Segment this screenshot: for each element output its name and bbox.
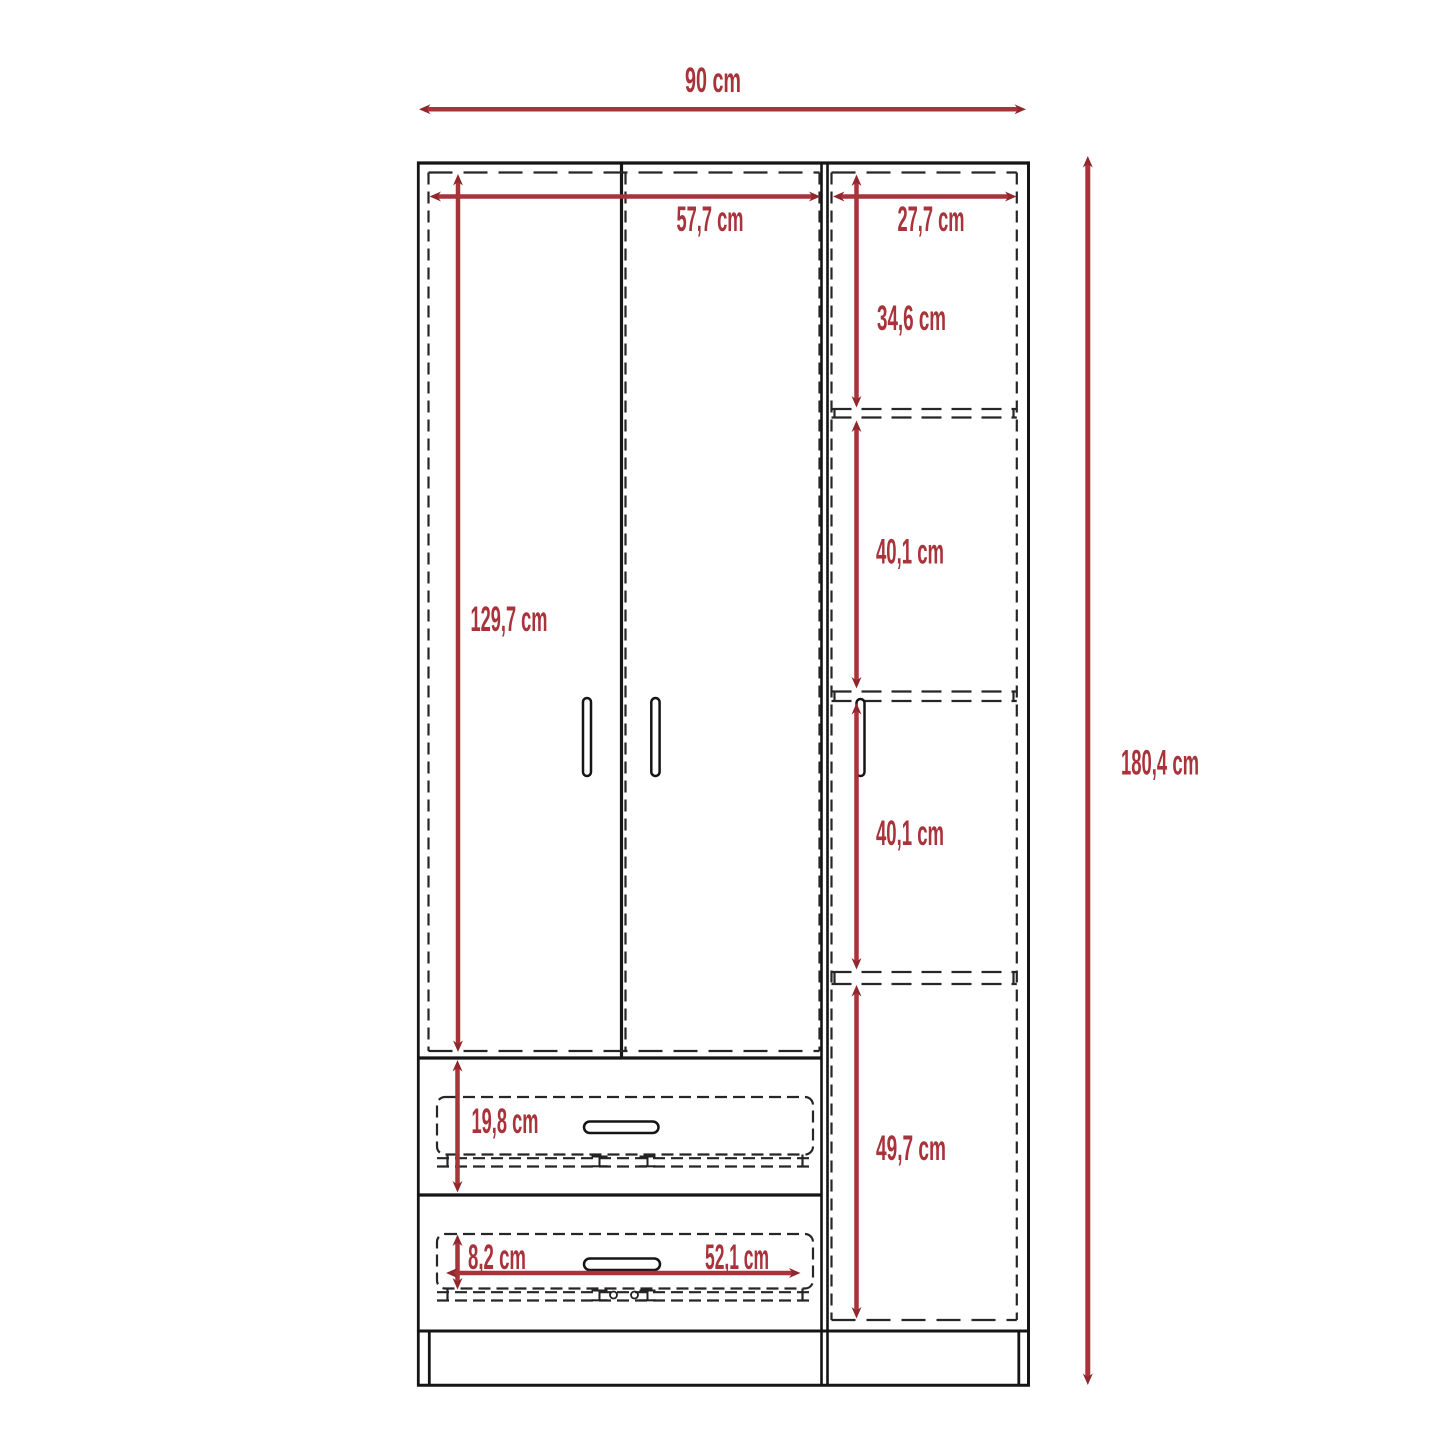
svg-text:40,1 cm: 40,1 cm: [876, 814, 944, 853]
svg-text:57,7 cm: 57,7 cm: [677, 200, 744, 239]
svg-text:129,7 cm: 129,7 cm: [471, 600, 548, 639]
svg-text:180,4 cm: 180,4 cm: [1121, 744, 1199, 783]
svg-text:34,6 cm: 34,6 cm: [877, 299, 946, 338]
svg-text:52,1 cm: 52,1 cm: [705, 1238, 769, 1277]
svg-text:27,7 cm: 27,7 cm: [898, 200, 965, 239]
svg-text:19,8 cm: 19,8 cm: [472, 1102, 539, 1141]
svg-text:90 cm: 90 cm: [685, 61, 741, 100]
svg-text:40,1 cm: 40,1 cm: [876, 533, 944, 572]
svg-text:8,2 cm: 8,2 cm: [468, 1238, 526, 1277]
svg-text:49,7 cm: 49,7 cm: [876, 1129, 946, 1168]
